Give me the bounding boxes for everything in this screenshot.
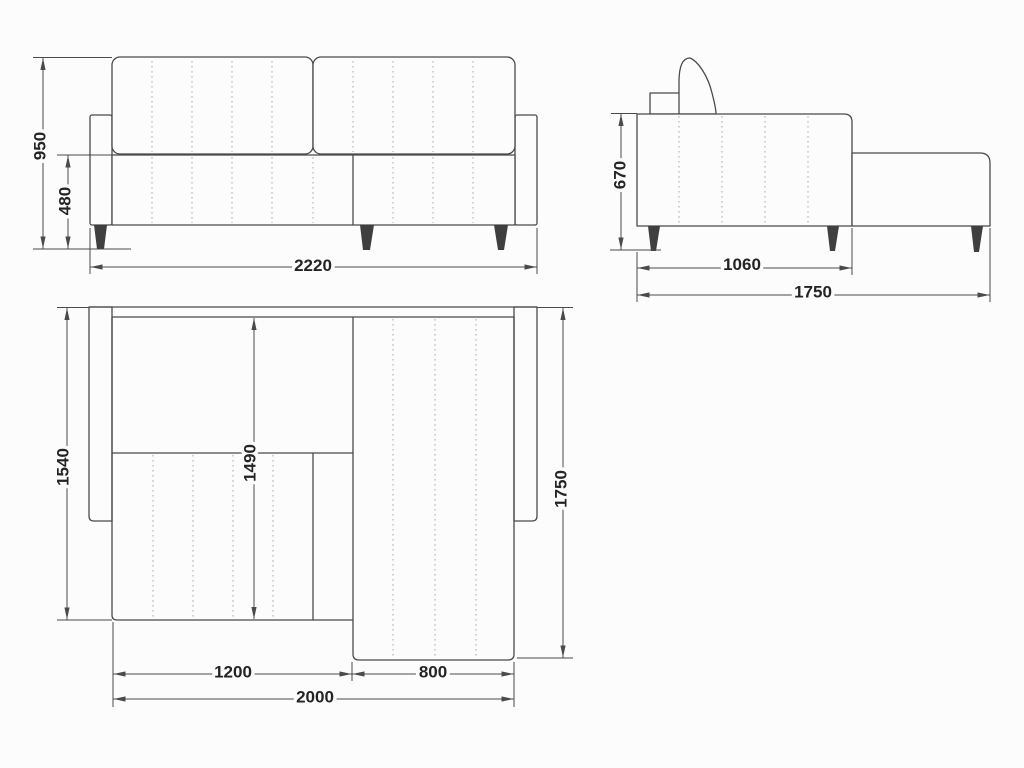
dimension-plan-inner-depth: 1490 (241, 318, 260, 619)
dimension-plan-overall-width: 2000 (114, 688, 514, 707)
front-armrest-right (515, 115, 537, 225)
dimension-label: 1750 (552, 470, 571, 508)
dimension-label: 950 (31, 132, 50, 160)
front-armrest-left (90, 115, 112, 225)
side-body (637, 114, 852, 226)
side-leg-rear (827, 226, 839, 251)
side-leg-ottoman (971, 226, 983, 252)
dimension-label: 1060 (723, 255, 761, 274)
side-view: 670 1060 1750 (610, 58, 990, 302)
plan-chaise-seams (393, 319, 476, 657)
side-ottoman (852, 153, 990, 226)
front-backrest-cushion-right (313, 57, 515, 154)
dimension-label: 2000 (296, 688, 334, 707)
dimension-plan-chaise-width: 800 (353, 662, 515, 707)
side-leg-front (648, 226, 660, 251)
dimension-label: 2220 (294, 256, 332, 275)
dimension-front-overall-width: 2220 (90, 228, 537, 275)
plan-armrest-left (89, 307, 112, 521)
plan-view: 1540 1490 1750 1200 800 2 (54, 307, 574, 707)
front-leg-middle (360, 225, 374, 250)
dimension-label: 1490 (241, 444, 260, 482)
dimension-label: 480 (56, 187, 75, 215)
front-view: 950 480 2220 (31, 57, 538, 275)
dimension-label: 800 (419, 663, 447, 682)
dimension-label: 670 (611, 161, 630, 189)
dimension-label: 1200 (214, 663, 252, 682)
plan-chaise-outline (353, 317, 514, 660)
front-seat-base (112, 155, 515, 225)
technical-drawing-page: 950 480 2220 (0, 0, 1024, 768)
side-headrest-cushion (650, 93, 681, 114)
front-leg-left (94, 225, 107, 249)
dimension-label: 1540 (54, 448, 73, 486)
side-back-pillow (679, 58, 716, 114)
plan-left-section-outline (112, 317, 353, 620)
front-leg-right (494, 225, 508, 250)
front-backrest-cushion-left (112, 57, 313, 154)
dimension-label: 1750 (794, 283, 832, 302)
plan-armrest-right (514, 307, 537, 521)
sofa-technical-drawing: 950 480 2220 (0, 0, 1024, 768)
dimension-side-overall-depth: 1750 (638, 228, 991, 302)
